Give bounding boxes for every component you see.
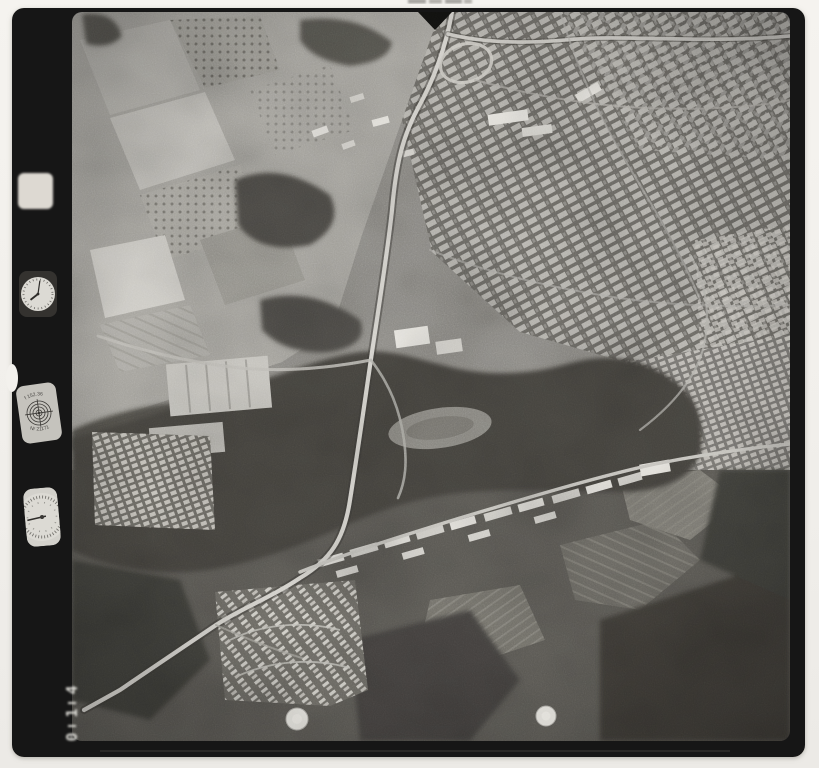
aerial-photo-scan: f 152.36 Nr 21171 4 1 0 — [0, 0, 819, 768]
frame-digit-1: 4 — [63, 685, 81, 694]
photo-vignette — [72, 12, 790, 741]
blank-label-tab — [18, 173, 53, 209]
illegible-edge-marking — [408, 0, 472, 4]
calibration-plate: f 152.36 Nr 21171 — [15, 381, 63, 444]
film-edge-notch — [6, 364, 18, 392]
frame-digit-3: 0 — [63, 732, 81, 741]
frame-digit-2: 1 — [63, 708, 81, 717]
aerial-photograph — [72, 12, 790, 741]
scanned-aerial-photo-page: f 152.36 Nr 21171 4 1 0 — [0, 0, 819, 768]
recording-clock — [19, 271, 57, 317]
frame-number: 4 1 0 — [63, 685, 81, 741]
